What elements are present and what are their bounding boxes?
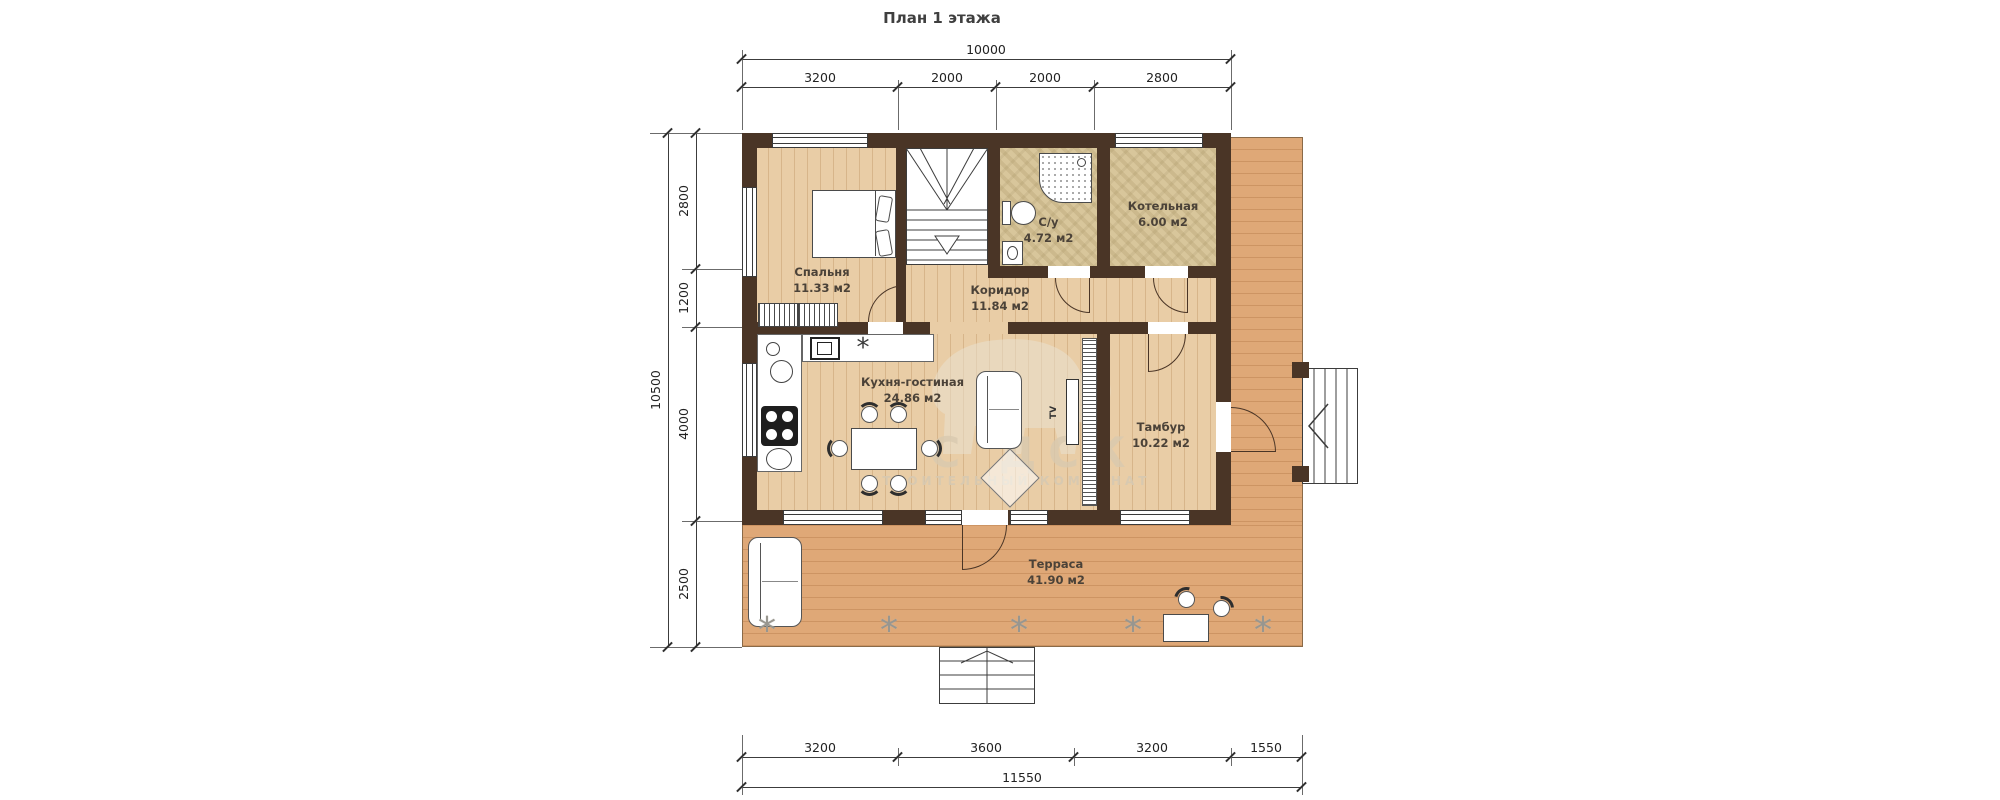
- passage-opening: [930, 322, 1008, 334]
- tv: [1066, 379, 1079, 445]
- kitchen-sink-bowl: [766, 342, 780, 356]
- room-label-kitchen-living: Кухня-гостиная 24.86 м2: [840, 374, 985, 406]
- room-label-boiler: Котельная 6.00 м2: [1110, 198, 1216, 230]
- dim-label-left-total: 10500: [649, 358, 663, 422]
- dim-label-left-seg: 2800: [677, 169, 691, 233]
- dim-label-bottom-total: 11550: [982, 770, 1062, 785]
- chair: [1175, 588, 1198, 611]
- deck-edge: [1231, 137, 1302, 138]
- chair: [921, 440, 938, 457]
- room-area: 6.00 м2: [1110, 214, 1216, 230]
- chair: [890, 475, 907, 492]
- room-label-bathroom: С/у 4.72 м2: [1000, 214, 1097, 246]
- window: [925, 510, 962, 525]
- tv-label: TV: [1049, 399, 1059, 419]
- sofa-back-line: [987, 376, 988, 443]
- dim-label-top-seg: 2000: [907, 70, 987, 85]
- dim-label-left-seg: 2500: [677, 552, 691, 616]
- page-title: План 1 этажа: [742, 9, 1142, 27]
- sofa-cushion-line: [762, 581, 798, 582]
- window: [1115, 133, 1203, 148]
- dim-label-bottom-seg: 3200: [780, 740, 860, 755]
- chair: [1210, 597, 1234, 621]
- dim-line-bottom-total: [742, 787, 1302, 788]
- burner: [782, 411, 793, 422]
- room-name: Котельная: [1110, 198, 1216, 214]
- room-name: Кухня-гостиная: [840, 374, 985, 390]
- extension-line: [1231, 50, 1232, 130]
- washing-machine: [766, 448, 792, 470]
- window: [1120, 510, 1190, 525]
- dim-line-top-total: [742, 59, 1231, 60]
- room-label-tambour: Тамбур 10.22 м2: [1105, 419, 1217, 451]
- bed-head-line: [875, 191, 876, 256]
- wardrobe: [798, 303, 838, 327]
- washbasin-bowl: [1007, 246, 1018, 260]
- room-area: 24.86 м2: [840, 390, 985, 406]
- plant-icon: *: [1118, 618, 1148, 644]
- door-opening: [1148, 322, 1188, 334]
- chair: [831, 440, 848, 457]
- staircase: [906, 148, 988, 265]
- deck-edge: [742, 525, 743, 647]
- room-name: Тамбур: [1105, 419, 1217, 435]
- room-name: С/у: [1000, 214, 1097, 230]
- dim-label-top-seg: 2800: [1122, 70, 1202, 85]
- room-area: 11.33 м2: [762, 280, 882, 296]
- room-name: Терраса: [996, 556, 1116, 572]
- door-opening: [1145, 266, 1188, 278]
- room-area: 11.84 м2: [940, 298, 1060, 314]
- terrace-table: [1163, 614, 1209, 642]
- extension-line: [742, 50, 743, 130]
- plant-icon: *: [1248, 618, 1278, 644]
- dim-label-top-total: 10000: [926, 42, 1046, 57]
- closet-hatch: [1082, 338, 1097, 506]
- sofa-cushion-line: [989, 409, 1019, 410]
- stove: [761, 406, 798, 446]
- door-opening: [962, 510, 1008, 525]
- dining-table: [851, 428, 917, 470]
- fridge: [810, 337, 840, 360]
- plant-icon: *: [874, 618, 904, 644]
- extension-line: [682, 269, 742, 270]
- dim-label-left-seg: 1200: [677, 266, 691, 330]
- chair: [861, 406, 878, 423]
- sofa-back-line: [760, 543, 761, 620]
- plant-icon: *: [752, 618, 782, 644]
- shower-drain: [1077, 158, 1086, 167]
- dim-label-top-seg: 2000: [1005, 70, 1085, 85]
- window: [783, 510, 883, 525]
- dim-line-left-segments: [696, 133, 697, 647]
- dim-label-bottom-seg: 3200: [1112, 740, 1192, 755]
- dim-line-bottom-segments: [742, 757, 1302, 758]
- room-area: 10.22 м2: [1105, 435, 1217, 451]
- dim-label-top-seg: 3200: [780, 70, 860, 85]
- porch-post: [1292, 362, 1309, 378]
- window: [742, 363, 757, 457]
- room-label-bedroom: Спальня 11.33 м2: [762, 264, 882, 296]
- plant-icon: *: [1004, 618, 1034, 644]
- window: [742, 187, 757, 277]
- dim-label-left-seg: 4000: [677, 392, 691, 456]
- chair: [861, 475, 878, 492]
- door-opening: [1048, 266, 1090, 278]
- floor-plan-canvas: План 1 этажа 10000 3200 2000 2000 2800 1…: [0, 0, 2000, 800]
- chair: [890, 406, 907, 423]
- room-area: 4.72 м2: [1000, 230, 1097, 246]
- dim-line-left-total: [668, 133, 669, 647]
- porch-stairs: [1302, 368, 1358, 484]
- room-label-terrace: Терраса 41.90 м2: [996, 556, 1116, 588]
- room-name: Коридор: [940, 282, 1060, 298]
- wardrobe: [758, 303, 798, 327]
- porch-post: [1292, 466, 1309, 482]
- room-label-corridor: Коридор 11.84 м2: [940, 282, 1060, 314]
- wall-stairs-bathroom: [988, 148, 1000, 278]
- burner: [766, 429, 777, 440]
- kitchen-sink-bowl: [770, 360, 793, 383]
- burner: [766, 411, 777, 422]
- terrace-steps: [939, 647, 1035, 704]
- room-name: Спальня: [762, 264, 882, 280]
- door-opening: [868, 322, 903, 334]
- wall-bathroom-boiler: [1097, 148, 1110, 278]
- door-opening: [1216, 402, 1231, 452]
- dim-label-bottom-seg: 1550: [1226, 740, 1306, 755]
- window: [1010, 510, 1048, 525]
- dim-line-top-segments: [742, 87, 1231, 88]
- room-area: 41.90 м2: [996, 572, 1116, 588]
- extension-line: [682, 521, 742, 522]
- dim-label-bottom-seg: 3600: [946, 740, 1026, 755]
- extension-line: [682, 327, 742, 328]
- window: [772, 133, 868, 148]
- cooktop-star-icon: *: [850, 338, 876, 362]
- burner: [782, 429, 793, 440]
- fridge-inner: [817, 342, 832, 355]
